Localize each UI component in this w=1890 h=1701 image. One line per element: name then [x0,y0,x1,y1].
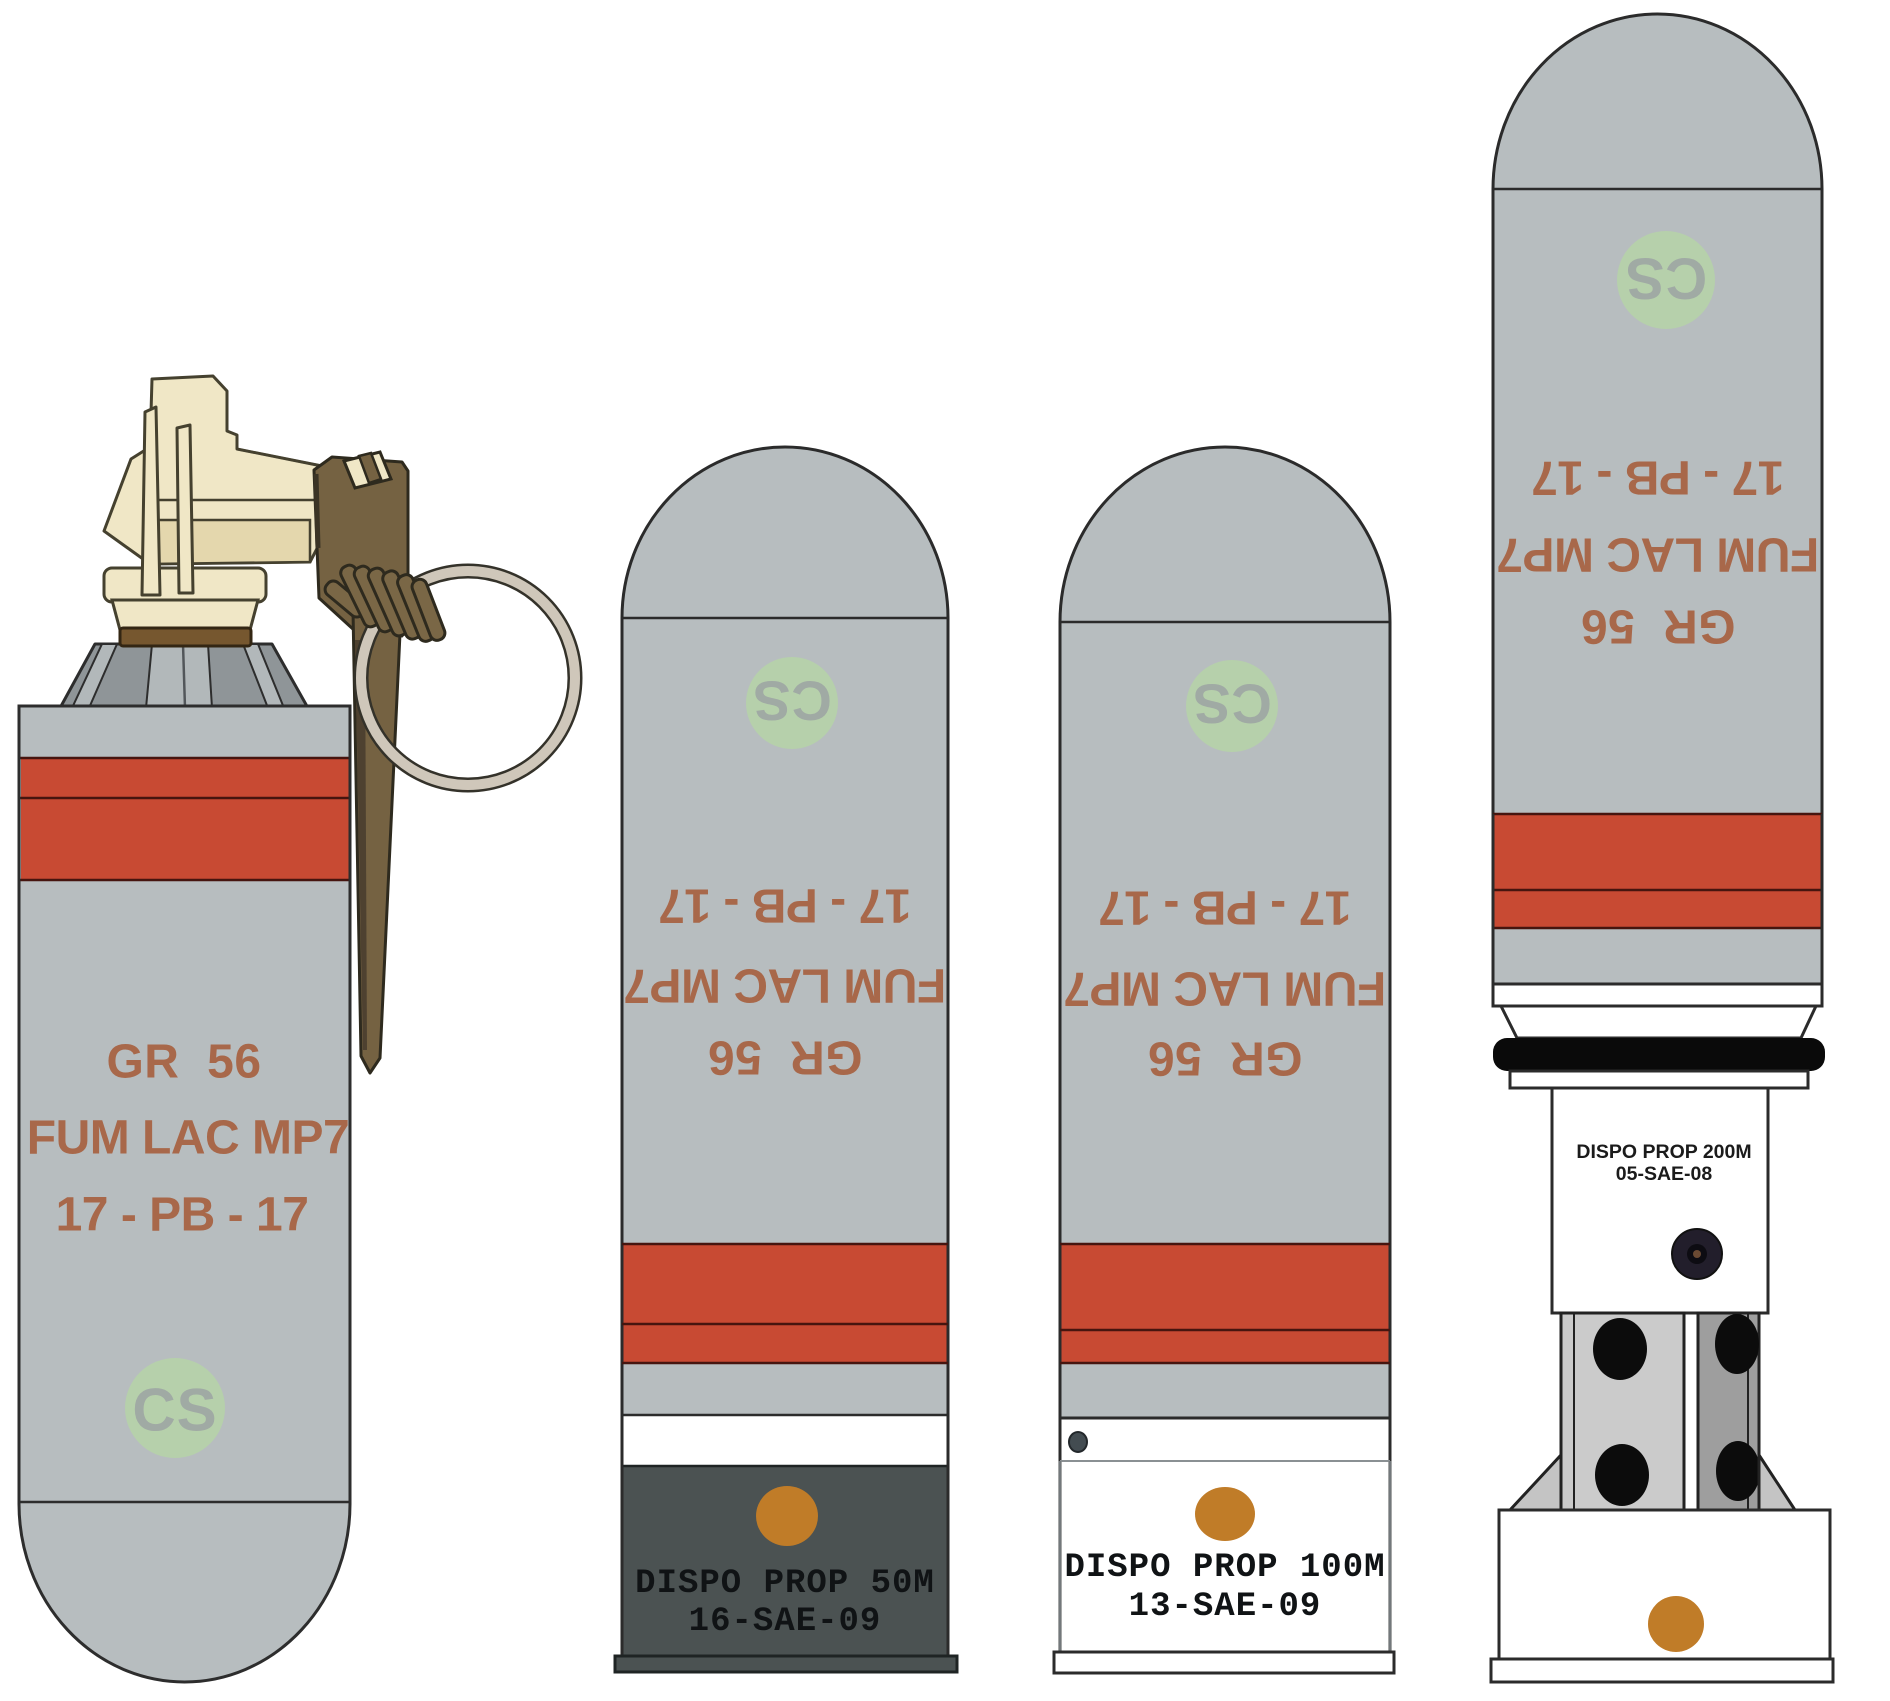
svg-text:GR 56: GR 56 [1580,600,1735,653]
svg-text:16-SAE-09: 16-SAE-09 [689,1603,882,1641]
svg-text:17 - PB - 17: 17 - PB - 17 [56,1189,309,1242]
svg-text:FUM LAC MP7: FUM LAC MP7 [1064,962,1386,1015]
svg-text:CS: CS [1192,673,1272,736]
svg-text:13-SAE-09: 13-SAE-09 [1129,1588,1322,1626]
svg-text:DISPO PROP 100M: DISPO PROP 100M [1064,1549,1385,1587]
svg-text:GR 56: GR 56 [1147,1032,1302,1085]
svg-text:DISPO PROP 50M: DISPO PROP 50M [635,1565,935,1603]
svg-text:DISPO PROP 200M: DISPO PROP 200M [1576,1141,1751,1163]
svg-text:GR 56: GR 56 [106,1036,261,1089]
svg-text:CS: CS [1625,246,1708,311]
svg-text:FUM LAC MP7: FUM LAC MP7 [624,959,946,1012]
svg-text:17 - PB - 17: 17 - PB - 17 [1532,451,1785,504]
svg-text:FUM LAC MP7: FUM LAC MP7 [1497,528,1819,581]
svg-text:CS: CS [132,1377,217,1444]
svg-text:17 - PB - 17: 17 - PB - 17 [1099,881,1352,934]
svg-text:FUM LAC MP7: FUM LAC MP7 [27,1112,349,1165]
svg-text:17 - PB - 17: 17 - PB - 17 [659,879,912,932]
svg-text:GR 56: GR 56 [707,1031,862,1084]
svg-text:05-SAE-08: 05-SAE-08 [1616,1163,1713,1185]
svg-text:CS: CS [752,670,832,733]
